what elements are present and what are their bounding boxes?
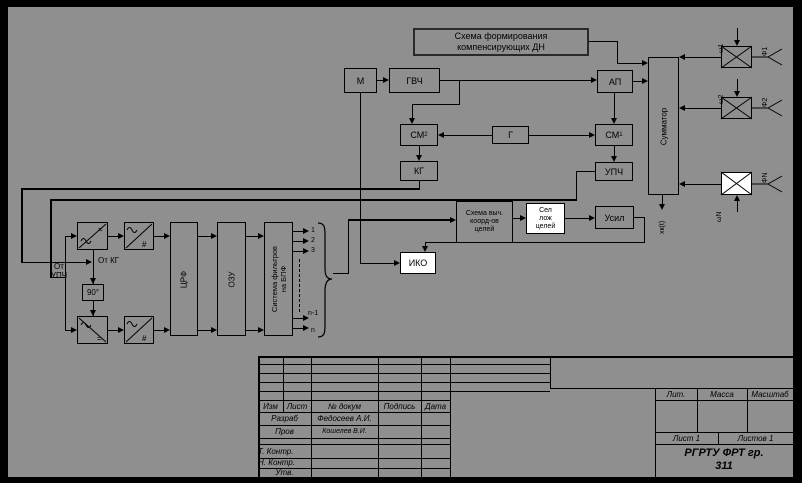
wire: [348, 219, 349, 274]
sel-line3: целей: [536, 223, 555, 231]
org-name-line2: 311: [655, 459, 793, 473]
output-label: n: [311, 326, 315, 335]
arrowhead: [416, 155, 422, 161]
sheets-total: Листов 1: [718, 433, 793, 444]
block-sm2-subscript: 2: [424, 130, 427, 140]
block-sm1-label: СМ: [605, 130, 619, 140]
arrowhead: [438, 132, 444, 138]
block-modulator-label: М: [357, 76, 365, 86]
title-line2: компенсирующих ДН: [457, 42, 545, 53]
antenna-icon: [752, 174, 792, 194]
arrowhead: [591, 77, 597, 83]
row-t-kontr: Т. Контр.: [258, 446, 311, 457]
wire: [685, 184, 721, 185]
weight-label: ω1: [718, 44, 726, 53]
arrowhead: [679, 105, 685, 111]
arrowhead: [118, 233, 124, 239]
row-prov-name: Кошелев В.И.: [311, 426, 378, 437]
block-generator: Г: [492, 126, 529, 144]
filterbank-line1: Система фильтров: [270, 225, 279, 333]
titleblock-line: [258, 382, 550, 383]
wire: [412, 104, 460, 105]
titleblock-line: [258, 356, 793, 358]
wire: [425, 242, 645, 243]
filterbank-line2: на БПФ: [279, 225, 288, 333]
wire: [685, 57, 721, 58]
col-docum: № докум: [311, 401, 378, 412]
block-sm1-subscript: 1: [619, 130, 622, 140]
arrowhead: [258, 233, 264, 239]
title-line1: Схема формирования: [455, 31, 548, 42]
arrowhead: [642, 78, 648, 84]
block-usil: Усил: [595, 206, 634, 229]
wire: [360, 93, 361, 263]
titleblock-line: [655, 400, 793, 401]
block-ap-label: АП: [609, 77, 621, 87]
arrowhead: [118, 327, 124, 333]
output-label: 1: [311, 226, 315, 235]
block-phase90-label: 90°: [87, 288, 99, 298]
arrowhead: [611, 118, 617, 124]
calc-line3: целей: [475, 226, 494, 234]
titleblock-line: [550, 356, 551, 388]
brace-icon: [316, 222, 336, 338]
block-gvch: ГВЧ: [389, 68, 440, 93]
wire: [576, 171, 577, 199]
titleblock-line: [655, 444, 793, 445]
arrowhead: [303, 248, 309, 254]
wire: [634, 217, 644, 218]
sum-output-label: xк(t): [659, 221, 667, 234]
arrowhead: [679, 181, 685, 187]
block-kg-label: КГ: [414, 166, 424, 176]
block-gvch-label: ГВЧ: [406, 76, 422, 86]
col-data: Дата: [421, 401, 450, 412]
col-massa: Масса: [697, 389, 747, 400]
titleblock-line: [450, 356, 451, 477]
output-label: 2: [311, 236, 315, 245]
block-phase90: 90°: [82, 284, 104, 301]
wire: [576, 171, 595, 172]
block-summator-label: Сумматор: [659, 61, 668, 191]
arrowhead: [90, 310, 96, 316]
ot-upch-label: От УПЧ: [46, 262, 72, 280]
arrowhead: [71, 327, 77, 333]
antenna-label: Ф1: [762, 47, 770, 56]
arrowhead: [679, 54, 685, 60]
arrowhead: [422, 246, 428, 252]
org-name-line1: РГРТУ ФРТ гр.: [655, 446, 793, 460]
arrowhead: [611, 156, 617, 162]
arrowhead: [258, 327, 264, 333]
block-upch-label: УПЧ: [605, 167, 623, 177]
wire: [412, 104, 413, 119]
block-ozu: ОЗУ: [217, 222, 246, 336]
titleblock-line: [258, 364, 550, 365]
mixer-icon: [721, 172, 752, 195]
block-iko-label: ИКО: [409, 258, 428, 268]
arrowhead: [409, 118, 415, 124]
weight-label: ω2: [718, 95, 726, 104]
block-filterbank-label: Система фильтров на БПФ: [270, 225, 288, 333]
arrowhead: [211, 233, 217, 239]
block-sm1: СМ1: [595, 124, 633, 146]
block-ap: АП: [597, 70, 633, 93]
block-crf-label: ЦРФ: [180, 229, 189, 329]
block-sm2-label: СМ: [410, 130, 424, 140]
block-sm2: СМ2: [400, 124, 438, 146]
digital-symbol: #: [142, 334, 147, 343]
block-kg: КГ: [400, 161, 438, 181]
wire: [529, 135, 590, 136]
antenna-label: Ф2: [762, 98, 770, 107]
wire: [685, 108, 721, 109]
antenna-icon: [752, 98, 792, 118]
ot-kg-label: От КГ: [98, 256, 119, 265]
titleblock-line: [258, 373, 550, 374]
phase-detector-icon: =: [77, 316, 108, 344]
row-razrab: Разраб: [258, 413, 311, 424]
wire: [198, 330, 212, 331]
wire: [333, 273, 348, 274]
weight-label: ωN: [716, 211, 724, 222]
arrowhead: [589, 215, 595, 221]
antenna-label: ФN: [762, 173, 770, 183]
wire: [737, 200, 738, 212]
arrowhead: [86, 259, 92, 265]
calc-line2: коорд-ов: [470, 218, 499, 226]
block-upch: УПЧ: [595, 162, 633, 181]
titleblock-line: [258, 444, 450, 445]
wire: [440, 80, 592, 81]
arrowhead: [303, 238, 309, 244]
row-razrab-name: Федосеев А.И.: [311, 413, 378, 424]
sheet-number: Лист 1: [655, 433, 718, 444]
wire: [589, 41, 618, 42]
block-false-target-selector: Сел лож целей: [526, 203, 565, 234]
arrowhead: [734, 195, 740, 201]
block-ozu-label: ОЗУ: [227, 229, 236, 329]
wire: [444, 135, 492, 136]
adc-icon: #: [124, 222, 154, 250]
wire: [360, 263, 395, 264]
wire: [565, 218, 590, 219]
block-summator: Сумматор: [648, 57, 679, 195]
block-crf: ЦРФ: [170, 222, 198, 336]
col-podpis: Подпись: [378, 401, 421, 412]
sel-line2: лож: [539, 215, 552, 223]
col-izm: Изм: [258, 401, 283, 412]
ellipsis-dashed-line: [299, 259, 300, 312]
block-usil-label: Усил: [605, 213, 625, 223]
arrowhead: [659, 204, 665, 210]
titleblock-line: [258, 438, 450, 439]
wire: [419, 181, 420, 188]
wire: [348, 219, 451, 221]
calc-line1: Схема выч.: [466, 210, 503, 218]
title-box: Схема формирования компенсирующих ДН: [413, 28, 589, 56]
wire: [65, 236, 66, 330]
arrowhead: [90, 278, 96, 284]
col-masshtab: Масштаб: [747, 389, 793, 400]
wire: [459, 80, 460, 105]
arrowhead: [164, 327, 170, 333]
digital-symbol: #: [142, 240, 147, 249]
arrowhead: [211, 327, 217, 333]
wire: [614, 93, 615, 119]
arrowhead: [303, 228, 309, 234]
arrowhead: [734, 91, 740, 97]
arrowhead: [642, 60, 648, 66]
block-filterbank: Система фильтров на БПФ: [264, 222, 293, 336]
wire: [617, 41, 618, 64]
col-lit: Лит.: [655, 389, 697, 400]
block-modulator: М: [344, 68, 377, 93]
block-generator-label: Г: [508, 130, 513, 140]
arrowhead: [394, 260, 400, 266]
titleblock-line: [258, 391, 550, 392]
arrowhead: [71, 233, 77, 239]
antenna-icon: [752, 47, 792, 67]
wire: [617, 63, 643, 64]
block-iko: ИКО: [400, 252, 436, 274]
col-list: Лист: [283, 401, 311, 412]
arrowhead: [589, 132, 595, 138]
drawing-sheet: Схема формирования компенсирующих ДН М Г…: [0, 0, 802, 483]
row-prov: Пров: [258, 426, 311, 437]
adc-icon: #: [124, 316, 154, 344]
arrowhead: [734, 40, 740, 46]
sel-line1: Сел: [539, 207, 552, 215]
output-label: 3: [311, 246, 315, 255]
wire: [644, 217, 645, 242]
wire: [198, 236, 212, 237]
arrowhead: [520, 215, 526, 221]
arrowhead: [164, 233, 170, 239]
row-utv: Утв.: [258, 467, 311, 478]
arrowhead: [383, 77, 389, 83]
wire: [21, 188, 23, 262]
dc-symbol: =: [98, 225, 103, 234]
arrowhead: [303, 325, 309, 331]
phase-detector-icon: =: [77, 222, 108, 250]
dc-symbol: =: [97, 334, 102, 343]
block-calc-coords: Схема выч. коорд-ов целей: [456, 201, 513, 243]
